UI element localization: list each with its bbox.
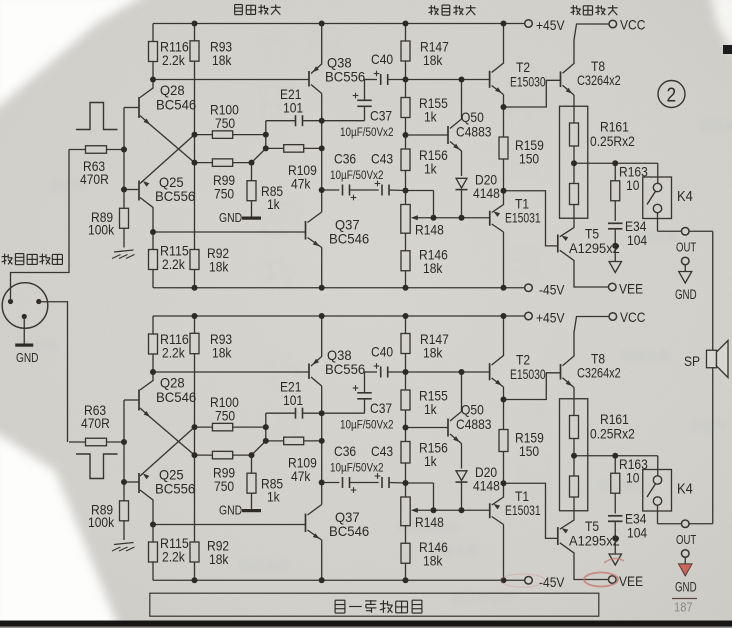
svg-text:2: 2 bbox=[667, 85, 677, 107]
svg-text:K4: K4 bbox=[677, 481, 693, 498]
svg-text:47k: 47k bbox=[291, 468, 311, 484]
svg-text:BC546: BC546 bbox=[156, 97, 196, 113]
svg-text:BC546: BC546 bbox=[329, 231, 369, 247]
svg-text:100k: 100k bbox=[88, 222, 115, 238]
svg-text:GND: GND bbox=[675, 287, 697, 302]
svg-text:C37: C37 bbox=[370, 108, 392, 124]
svg-text:R148: R148 bbox=[415, 222, 444, 238]
svg-text:18k: 18k bbox=[423, 553, 443, 569]
svg-text:10: 10 bbox=[626, 470, 640, 486]
svg-text:C43: C43 bbox=[371, 443, 393, 459]
svg-text:187: 187 bbox=[674, 600, 693, 615]
svg-text:BC556: BC556 bbox=[325, 69, 365, 85]
svg-text:OUT: OUT bbox=[676, 240, 696, 255]
svg-text:BC556: BC556 bbox=[155, 188, 195, 204]
svg-text:C40: C40 bbox=[371, 51, 393, 67]
svg-text:1k: 1k bbox=[267, 489, 281, 505]
svg-text:C4883: C4883 bbox=[456, 124, 492, 140]
svg-text:GND: GND bbox=[219, 210, 242, 225]
svg-text:18k: 18k bbox=[423, 345, 443, 361]
svg-text:18k: 18k bbox=[212, 52, 232, 68]
svg-text:47k: 47k bbox=[291, 176, 311, 192]
svg-text:101: 101 bbox=[283, 100, 303, 116]
svg-text:2.2k: 2.2k bbox=[162, 256, 186, 272]
svg-text:OUT: OUT bbox=[676, 532, 696, 547]
svg-text:18k: 18k bbox=[209, 259, 229, 275]
svg-text:2.2k: 2.2k bbox=[162, 52, 186, 68]
svg-text:C37: C37 bbox=[370, 400, 392, 416]
svg-text:10µF/50Vx2: 10µF/50Vx2 bbox=[340, 420, 394, 432]
svg-text:150: 150 bbox=[519, 151, 539, 167]
svg-text:100k: 100k bbox=[88, 514, 115, 530]
svg-text:C3264x2: C3264x2 bbox=[577, 72, 621, 88]
svg-text:750: 750 bbox=[215, 408, 235, 424]
svg-text:0.25Rx2: 0.25Rx2 bbox=[590, 426, 635, 442]
svg-text:GND: GND bbox=[675, 580, 697, 595]
svg-text:470R: 470R bbox=[80, 171, 109, 187]
svg-text:E15030: E15030 bbox=[510, 74, 546, 90]
svg-text:2.2k: 2.2k bbox=[162, 345, 186, 361]
svg-text:10µF/50Vx2: 10µF/50Vx2 bbox=[340, 127, 394, 139]
svg-text:C3264x2: C3264x2 bbox=[577, 365, 621, 381]
svg-text:4148: 4148 bbox=[473, 478, 500, 494]
svg-text:BC546: BC546 bbox=[329, 523, 369, 539]
svg-text:2.2k: 2.2k bbox=[162, 549, 186, 565]
svg-text:101: 101 bbox=[283, 392, 303, 408]
svg-text:750: 750 bbox=[215, 115, 235, 131]
svg-text:750: 750 bbox=[214, 186, 234, 202]
svg-text:E15031: E15031 bbox=[505, 210, 541, 226]
svg-text:E15030: E15030 bbox=[510, 366, 546, 382]
svg-text:10µF/50Vx2: 10µF/50Vx2 bbox=[330, 170, 384, 182]
svg-text:470R: 470R bbox=[81, 415, 110, 431]
svg-text:10: 10 bbox=[626, 177, 640, 193]
svg-text:VEE: VEE bbox=[619, 573, 643, 589]
svg-text:-45V: -45V bbox=[539, 282, 565, 298]
svg-text:1k: 1k bbox=[424, 161, 438, 177]
svg-text:-45V: -45V bbox=[539, 574, 565, 590]
svg-text:BC546: BC546 bbox=[156, 389, 196, 405]
svg-text:4148: 4148 bbox=[473, 185, 500, 201]
svg-text:C36: C36 bbox=[334, 443, 356, 459]
svg-text:1k: 1k bbox=[424, 109, 438, 125]
svg-text:VCC: VCC bbox=[620, 17, 645, 33]
svg-text:0.25Rx2: 0.25Rx2 bbox=[590, 133, 635, 149]
svg-text:BC556: BC556 bbox=[155, 481, 195, 497]
svg-text:104: 104 bbox=[627, 232, 647, 248]
svg-text:GND: GND bbox=[219, 503, 242, 518]
svg-text:18k: 18k bbox=[212, 345, 232, 361]
svg-text:R148: R148 bbox=[415, 514, 444, 530]
svg-text:+45V: +45V bbox=[536, 17, 565, 33]
svg-text:GND: GND bbox=[16, 350, 39, 365]
svg-text:18k: 18k bbox=[209, 551, 229, 567]
svg-text:18k: 18k bbox=[423, 52, 443, 68]
svg-text:A1295x2: A1295x2 bbox=[569, 533, 620, 549]
svg-text:C4883: C4883 bbox=[456, 416, 492, 432]
svg-text:C43: C43 bbox=[371, 151, 393, 167]
svg-text:1k: 1k bbox=[267, 196, 281, 212]
svg-text:BC556: BC556 bbox=[325, 361, 365, 377]
svg-text:C36: C36 bbox=[334, 151, 356, 167]
svg-text:+45V: +45V bbox=[536, 310, 565, 326]
svg-text:150: 150 bbox=[519, 443, 539, 459]
svg-text:18k: 18k bbox=[423, 260, 443, 276]
svg-text:1k: 1k bbox=[424, 401, 438, 417]
svg-text:750: 750 bbox=[214, 478, 234, 494]
svg-text:VCC: VCC bbox=[620, 309, 645, 325]
svg-text:A1295x2: A1295x2 bbox=[569, 240, 620, 256]
svg-text:K4: K4 bbox=[677, 188, 693, 205]
svg-text:104: 104 bbox=[627, 525, 647, 541]
svg-text:SP: SP bbox=[684, 353, 700, 369]
svg-text:E15031: E15031 bbox=[505, 502, 541, 518]
svg-text:10µF/50Vx2: 10µF/50Vx2 bbox=[330, 463, 384, 475]
svg-text:VEE: VEE bbox=[619, 281, 643, 297]
svg-text:C40: C40 bbox=[371, 344, 393, 360]
svg-text:1k: 1k bbox=[424, 453, 438, 469]
